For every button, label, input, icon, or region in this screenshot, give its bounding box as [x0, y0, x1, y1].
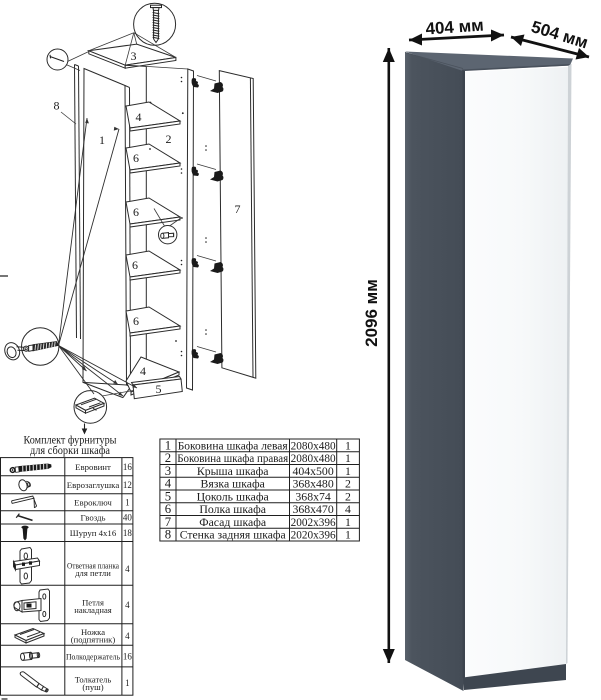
svg-text:6: 6 — [133, 151, 139, 165]
svg-text:4: 4 — [136, 110, 142, 124]
svg-text:12: 12 — [123, 480, 132, 490]
svg-text:для сборки шкафа: для сборки шкафа — [30, 445, 110, 457]
svg-text:3: 3 — [131, 49, 137, 63]
svg-text:6: 6 — [132, 258, 138, 272]
svg-text:Стенка задняя шкафа: Стенка задняя шкафа — [180, 528, 287, 542]
svg-text:4: 4 — [140, 364, 146, 378]
svg-text:2020x396: 2020x396 — [291, 528, 336, 542]
svg-text:5: 5 — [156, 382, 162, 396]
svg-text:8: 8 — [54, 99, 60, 113]
svg-text:Еврозаглушка: Еврозаглушка — [67, 480, 120, 490]
svg-text:Гвоздь: Гвоздь — [80, 513, 105, 523]
svg-text:404 мм: 404 мм — [425, 16, 484, 39]
svg-text:18: 18 — [123, 528, 133, 538]
svg-text:2096 мм: 2096 мм — [362, 279, 381, 347]
svg-text:(подпятник): (подпятник) — [71, 635, 116, 645]
svg-text:(пуш): (пуш) — [82, 682, 103, 692]
svg-text:4: 4 — [125, 600, 130, 610]
svg-text:6: 6 — [133, 205, 139, 219]
svg-text:2: 2 — [166, 132, 172, 146]
svg-text:1: 1 — [125, 678, 130, 688]
svg-text:1: 1 — [99, 133, 105, 147]
svg-text:7: 7 — [235, 202, 241, 216]
svg-text:4: 4 — [125, 564, 130, 574]
svg-text:1: 1 — [345, 528, 351, 542]
svg-text:6: 6 — [133, 314, 139, 328]
svg-text:накладная: накладная — [74, 605, 111, 615]
svg-text:4: 4 — [125, 631, 130, 641]
svg-text:40: 40 — [123, 513, 133, 523]
svg-text:16: 16 — [123, 651, 133, 661]
svg-text:для петли: для петли — [75, 568, 111, 578]
svg-text:Евровинт: Евровинт — [75, 462, 111, 472]
svg-text:Шуруп 4x16: Шуруп 4x16 — [70, 528, 117, 538]
svg-text:8: 8 — [165, 528, 171, 542]
svg-text:16: 16 — [123, 462, 133, 472]
svg-text:Полкодержатель: Полкодержатель — [66, 651, 120, 661]
svg-text:1: 1 — [125, 497, 130, 507]
svg-text:Евроключ: Евроключ — [74, 497, 112, 507]
